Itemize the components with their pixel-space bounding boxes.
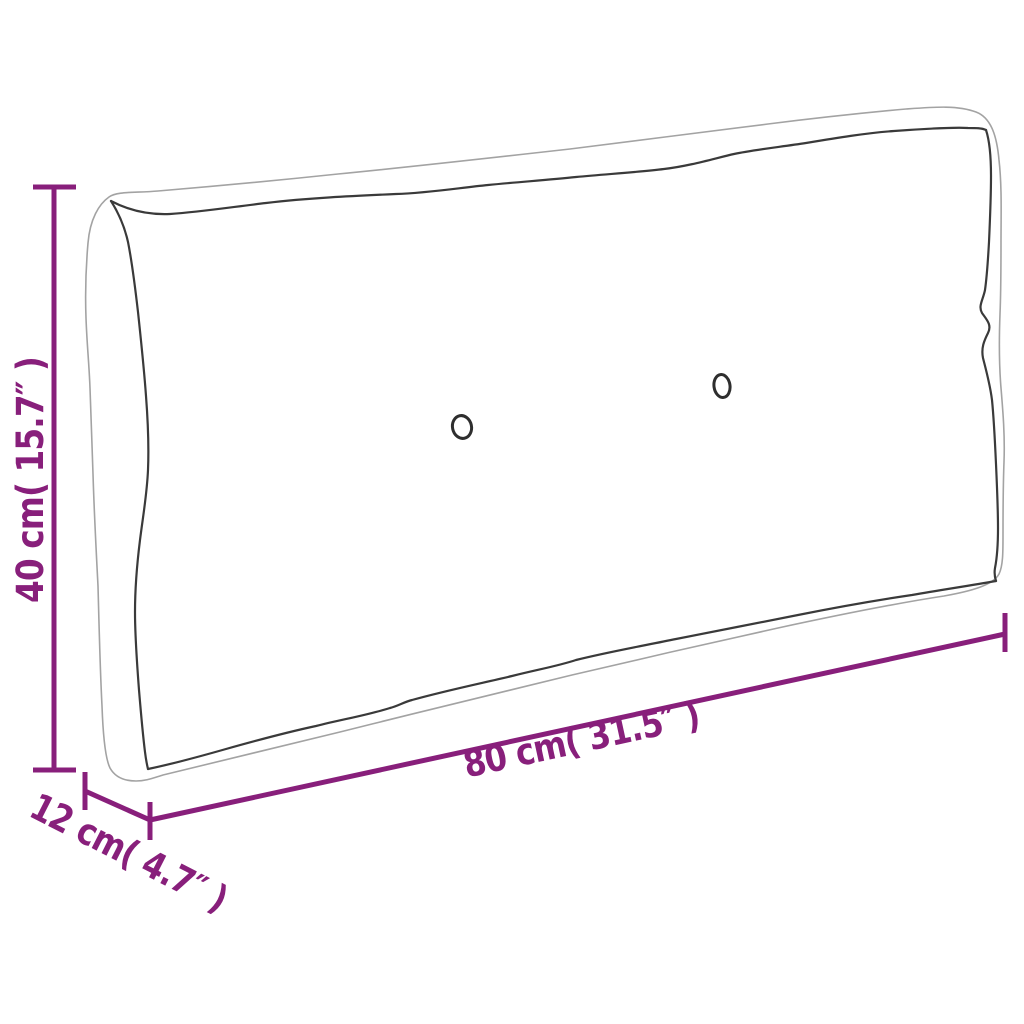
cushion-right-seam xyxy=(980,130,998,581)
cushion-left-seam xyxy=(111,201,148,769)
dimension-diagram-canvas: 40 cm( 15.7″ ) 12 cm( 4.7″ ) 80 cm( 31.5… xyxy=(0,0,1024,1024)
cushion-button-right xyxy=(712,373,731,398)
cushion-button-left xyxy=(450,414,473,440)
product-dimension-image: 40 cm( 15.7″ ) 12 cm( 4.7″ ) 80 cm( 31.5… xyxy=(0,0,1024,1024)
width-dimension-label: 80 cm( 31.5″ ) xyxy=(460,693,704,786)
height-dimension-label: 40 cm( 15.7″ ) xyxy=(9,357,52,603)
dimension-labels: 40 cm( 15.7″ ) 12 cm( 4.7″ ) 80 cm( 31.5… xyxy=(9,357,703,921)
cushion-sketch xyxy=(86,107,1005,781)
cushion-top-seam xyxy=(111,128,986,214)
depth-dimension-label: 12 cm( 4.7″ ) xyxy=(23,785,234,921)
